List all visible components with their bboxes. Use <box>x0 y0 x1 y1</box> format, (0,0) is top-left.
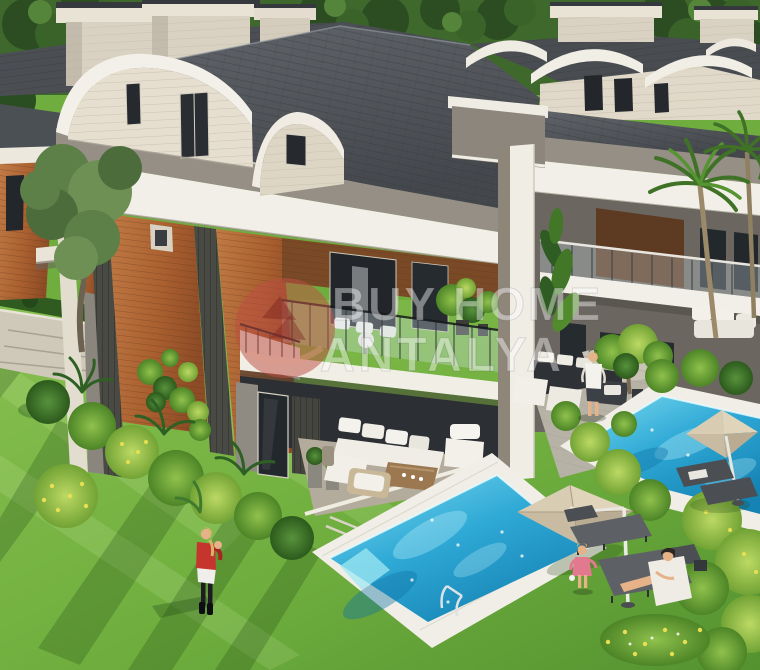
watermark-line1: BUY HOME <box>332 278 603 330</box>
side-table <box>694 560 707 571</box>
watermark: BUY HOME ANTALYA <box>235 278 603 382</box>
chimney-4 <box>550 2 662 42</box>
villa-aerial-render: BUY HOME ANTALYA <box>0 0 760 670</box>
watermark-line2: ANTALYA <box>320 329 565 382</box>
chimney-5 <box>694 6 758 43</box>
flower-bush-bottom <box>600 614 710 666</box>
render-canvas: BUY HOME ANTALYA <box>0 0 760 670</box>
